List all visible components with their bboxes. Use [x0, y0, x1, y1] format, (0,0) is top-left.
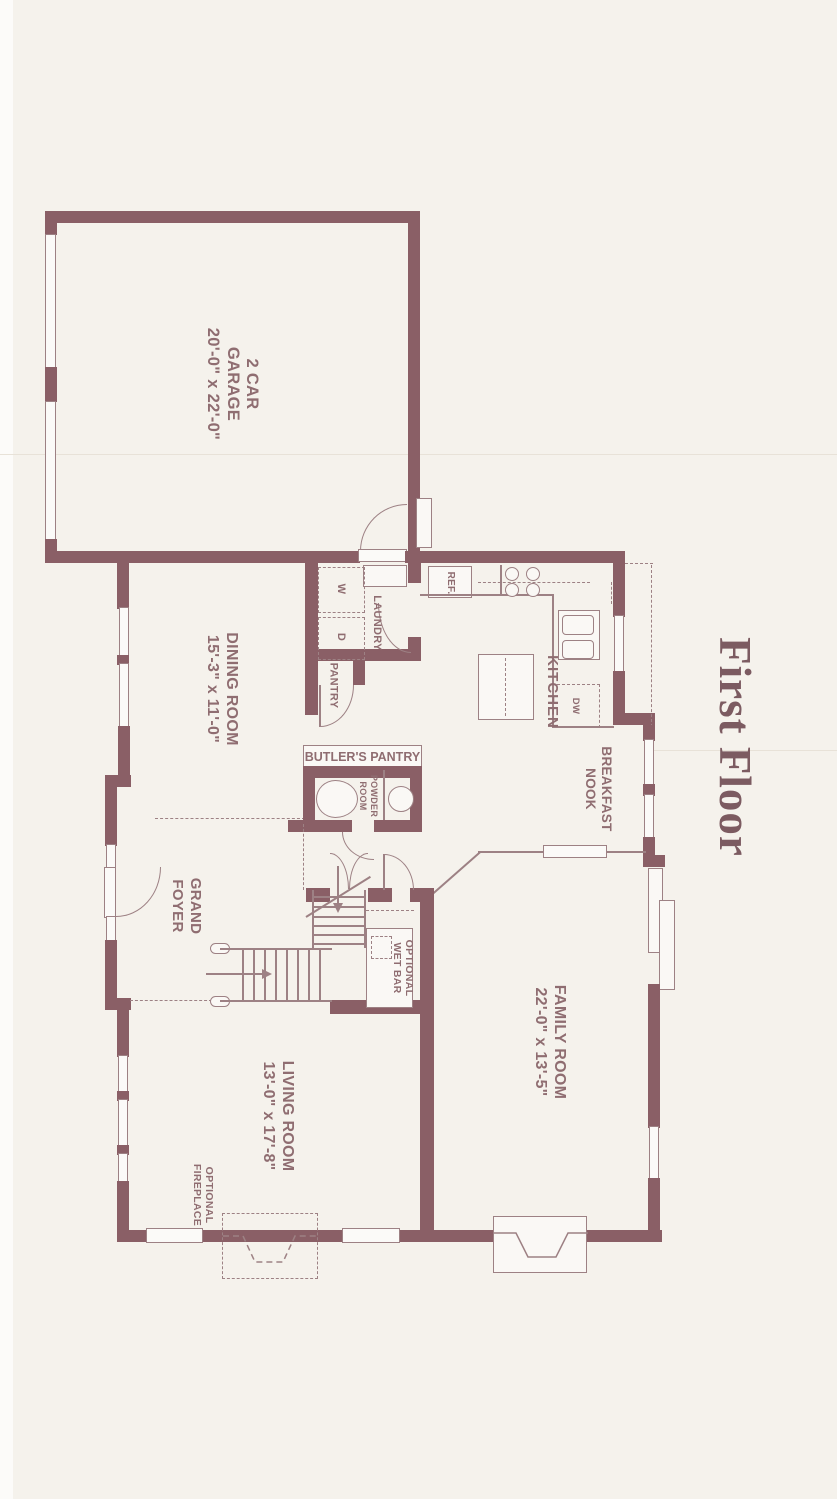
- window-nook-family: [543, 845, 607, 858]
- basement-stair-tread: [314, 925, 364, 927]
- label-living: LIVING ROOM 13'-0" x 17'-8": [257, 1041, 297, 1191]
- hall-family-door-arc: [384, 854, 414, 890]
- label-kitchen: KITCHEN: [542, 637, 562, 747]
- label-foyer: GRAND FOYER: [169, 876, 203, 936]
- wall-powder-bottom-a: [288, 820, 352, 832]
- wall-family-bottom-a: [420, 1230, 498, 1242]
- label-dryer: D: [335, 627, 347, 647]
- window-nook-2: [644, 794, 654, 839]
- window-garage-left-1: [45, 234, 56, 369]
- optional-fireplace-symbol: [223, 1214, 316, 1277]
- dash-foyer-living: [130, 1000, 212, 1002]
- dash-optional-extension-top: [625, 563, 653, 565]
- optional-fireplace-line2: FIREPLACE: [191, 1164, 203, 1226]
- label-powder: POWDER ROOM: [357, 771, 379, 821]
- angled-wall-line: [427, 851, 481, 899]
- stair-up-arrow-head: [262, 969, 272, 979]
- wall-kitchen-bottom-stub: [613, 713, 655, 725]
- stair-rail-bottom: [220, 1000, 332, 1002]
- stair-down-arrow-head: [333, 903, 343, 913]
- label-dishwasher: DW: [569, 691, 581, 721]
- refrigerator-text: REF.: [444, 572, 456, 595]
- title-text: First Floor: [709, 637, 761, 857]
- dryer-letter: D: [335, 633, 348, 641]
- foyer-line2: FOYER: [168, 879, 186, 932]
- garage-exterior-step: [416, 498, 432, 548]
- wall-family-left: [420, 888, 434, 1242]
- optional-fireplace-box: [222, 1213, 318, 1279]
- wall-kitchen-top: [405, 551, 625, 563]
- label-optional-fireplace: OPTIONAL FIREPLACE: [191, 1158, 215, 1232]
- wall-garage-bottom: [45, 551, 360, 563]
- kitchen-name: KITCHEN: [543, 655, 561, 729]
- window-nook-1: [644, 739, 654, 786]
- powder-door-arc: [342, 832, 374, 860]
- fireplace-box: [493, 1216, 587, 1273]
- living-dims: 13'-0" x 17'-8": [258, 1061, 277, 1170]
- wall-kitchen-right-a: [613, 551, 625, 617]
- laundry-name: LAUNDRY: [371, 595, 384, 650]
- front-door-arc: [116, 867, 161, 917]
- stair-tread: [319, 950, 321, 1000]
- butlers-pantry-box: BUTLER'S PANTRY: [303, 745, 422, 768]
- basement-stair-side-left: [312, 890, 314, 948]
- window-living-left-1: [118, 1055, 128, 1093]
- fireplace-symbol: [494, 1217, 588, 1274]
- window-living-bottom-2: [342, 1228, 400, 1243]
- wall-dining-left-b: [118, 726, 130, 778]
- window-family-right: [649, 1126, 659, 1180]
- dash-optional-extension-right: [651, 565, 653, 727]
- wall-powder-bottom-b: [374, 820, 422, 832]
- stair-tread: [253, 950, 255, 1000]
- living-name: LIVING ROOM: [277, 1061, 296, 1172]
- stove-burner-2: [526, 567, 540, 581]
- wall-dining-left-a: [117, 563, 129, 609]
- wall-hall-block-b: [368, 888, 392, 902]
- breakfast-line2: NOOK: [582, 768, 598, 810]
- sliding-door-panel-2: [659, 900, 675, 990]
- stove-burner-3: [505, 583, 519, 597]
- window-living-left-3: [118, 1153, 128, 1183]
- garage-dims: 20'-0" x 22'-0": [203, 328, 222, 440]
- front-door-leaf: [104, 867, 116, 918]
- wall-family-bottom-b: [584, 1230, 662, 1242]
- dash-foyer-hall: [303, 824, 305, 890]
- dash-counter-edge: [478, 582, 590, 584]
- sink-basin-2: [562, 640, 594, 659]
- basement-stair-tread: [314, 916, 364, 918]
- stair-tread: [308, 950, 310, 1000]
- optional-fireplace-line1: OPTIONAL: [203, 1167, 215, 1224]
- washer-letter: W: [335, 584, 348, 595]
- label-breakfast-nook: BREAKFAST NOOK: [583, 744, 613, 834]
- window-dining-2: [119, 663, 129, 728]
- closet-door-arc-left: [330, 853, 349, 889]
- foyer-line1: GRAND: [186, 878, 204, 935]
- garage-name-line1: 2 CAR: [242, 358, 261, 409]
- label-laundry: LAUNDRY: [370, 588, 384, 658]
- wall-garage-left-a: [45, 211, 57, 235]
- wetbar-sink: [371, 936, 392, 959]
- label-refrigerator: REF.: [444, 565, 456, 601]
- window-living-left-2: [118, 1099, 128, 1147]
- dishwasher-text: DW: [569, 698, 580, 714]
- basement-stair-tread: [314, 943, 364, 945]
- island-center-line: [505, 658, 507, 716]
- counter-separator: [500, 565, 502, 595]
- label-pantry: PANTRY: [327, 656, 340, 716]
- breakfast-line1: BREAKFAST: [598, 746, 614, 831]
- garage-door-arc: [360, 504, 407, 551]
- stair-up-arrow-line: [206, 973, 264, 975]
- page-title: First Floor: [705, 627, 765, 867]
- wall-nook-family-junction: [643, 855, 665, 867]
- garage-name-line2: GARAGE: [222, 347, 241, 421]
- wall-family-right-a: [648, 984, 660, 1128]
- stair-tread: [286, 950, 288, 1000]
- wall-garage-left-b: [45, 367, 57, 402]
- dining-name: DINING ROOM: [221, 632, 240, 746]
- label-family: FAMILY ROOM 22'-0" x 13'-5": [529, 967, 569, 1117]
- stove-burner-1: [505, 567, 519, 581]
- wall-dining-right: [305, 563, 318, 715]
- wetbar-line2: WET BAR: [391, 942, 403, 993]
- powder-line2: ROOM: [357, 781, 368, 810]
- window-foyer-sidelight-bottom: [106, 916, 116, 942]
- family-name: FAMILY ROOM: [549, 985, 568, 1099]
- wall-foyer-left-a: [105, 940, 117, 1004]
- label-garage: 2 CAR GARAGE 20'-0" x 22'-0": [203, 309, 261, 459]
- wetbar-line1: OPTIONAL: [403, 940, 415, 997]
- label-dining: DINING ROOM 15'-3" x 11'-0": [201, 619, 241, 759]
- label-wetbar: OPTIONAL WET BAR: [391, 928, 415, 1008]
- floor-plan-page: 2 CAR GARAGE 20'-0" x 22'-0" DINING ROOM…: [0, 0, 837, 1499]
- wall-hall-block-a: [306, 888, 330, 902]
- window-kitchen-right: [614, 615, 624, 673]
- stair-tread: [297, 950, 299, 1000]
- dash-wetbar-top: [366, 910, 414, 912]
- window-garage-left-2: [45, 401, 56, 541]
- powder-sink: [388, 786, 414, 812]
- butlers-pantry-text: BUTLER'S PANTRY: [305, 750, 420, 764]
- wall-laundry-kitchen-a: [408, 563, 421, 583]
- paper-edge: [0, 0, 13, 1499]
- stair-tread: [242, 950, 244, 1000]
- dash-counter-corner: [611, 582, 613, 604]
- pantry-name: PANTRY: [327, 663, 340, 709]
- wall-foyer-left-b: [105, 775, 117, 846]
- label-washer: W: [335, 579, 347, 599]
- basement-stair-tread: [314, 934, 364, 936]
- sink-basin-1: [562, 615, 594, 635]
- stove-burner-4: [526, 583, 540, 597]
- window-dining-1: [119, 607, 129, 657]
- family-dims: 22'-0" x 13'-5": [530, 987, 549, 1096]
- wall-garage-top: [45, 211, 420, 223]
- powder-divider-line: [383, 770, 385, 820]
- dash-opening-dining-foyer: [155, 818, 305, 820]
- stair-down-arrow-line: [337, 866, 339, 906]
- wall-living-left-b: [117, 1003, 129, 1057]
- stair-tread: [275, 950, 277, 1000]
- laundry-landing: [363, 565, 407, 587]
- toilet: [316, 780, 358, 818]
- dining-dims: 15'-3" x 11'-0": [202, 635, 221, 743]
- garage-door-leaf: [358, 549, 407, 562]
- powder-line1: POWDER: [368, 775, 379, 817]
